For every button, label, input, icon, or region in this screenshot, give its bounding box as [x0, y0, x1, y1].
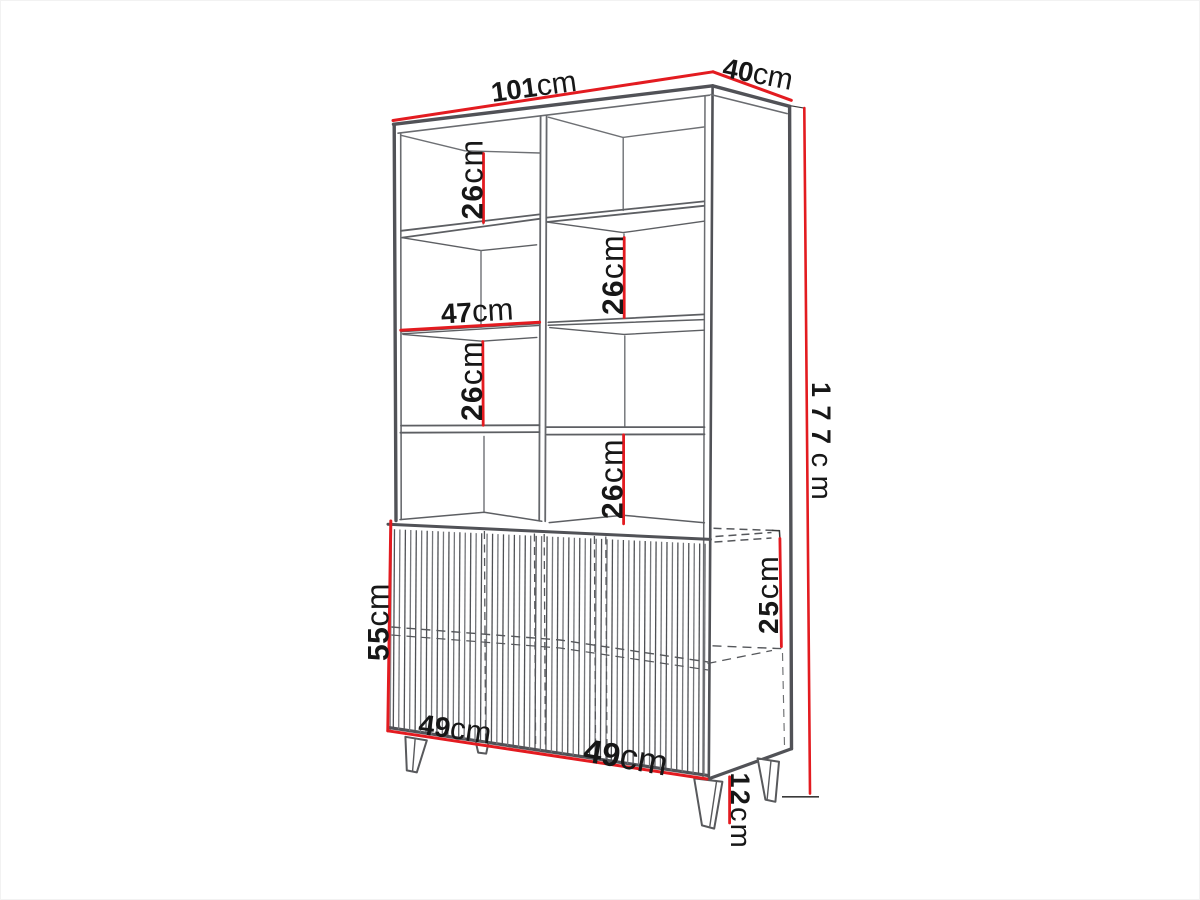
- svg-text:47cm: 47cm: [440, 291, 514, 330]
- svg-text:26cm: 26cm: [594, 234, 630, 315]
- svg-text:26cm: 26cm: [453, 340, 489, 421]
- svg-text:55cm: 55cm: [359, 583, 395, 661]
- svg-text:177cm: 177cm: [805, 382, 837, 508]
- svg-text:25cm: 25cm: [750, 554, 785, 634]
- svg-text:26cm: 26cm: [594, 438, 630, 519]
- svg-text:26cm: 26cm: [454, 139, 490, 220]
- svg-text:12cm: 12cm: [724, 773, 756, 851]
